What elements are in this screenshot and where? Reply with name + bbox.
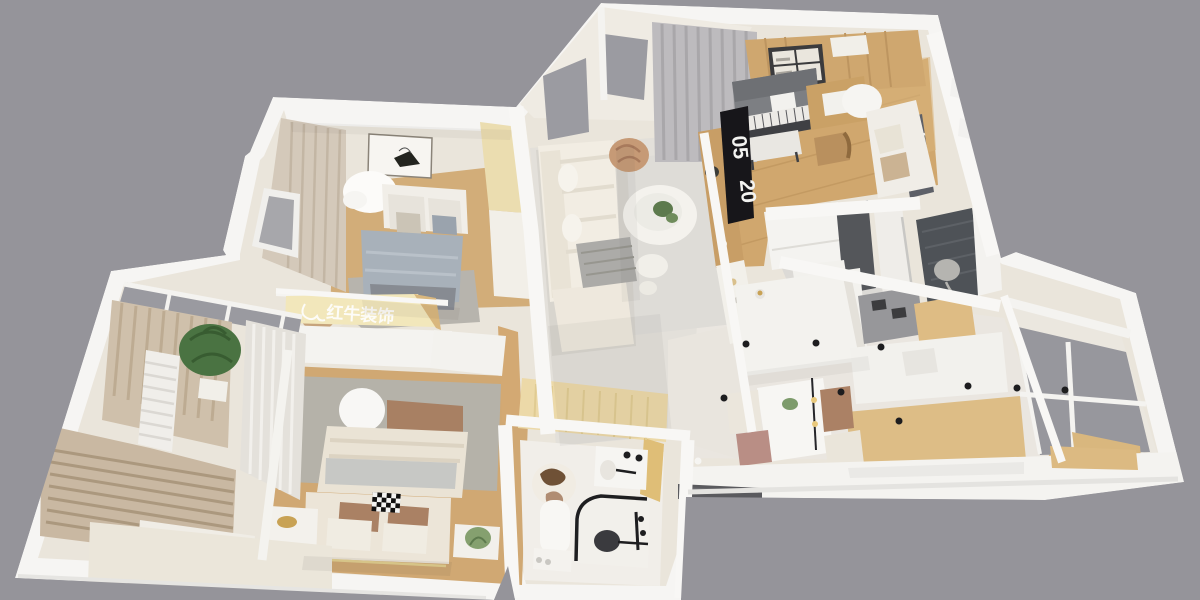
svg-text:05: 05: [727, 135, 752, 161]
svg-text:20: 20: [735, 179, 760, 205]
